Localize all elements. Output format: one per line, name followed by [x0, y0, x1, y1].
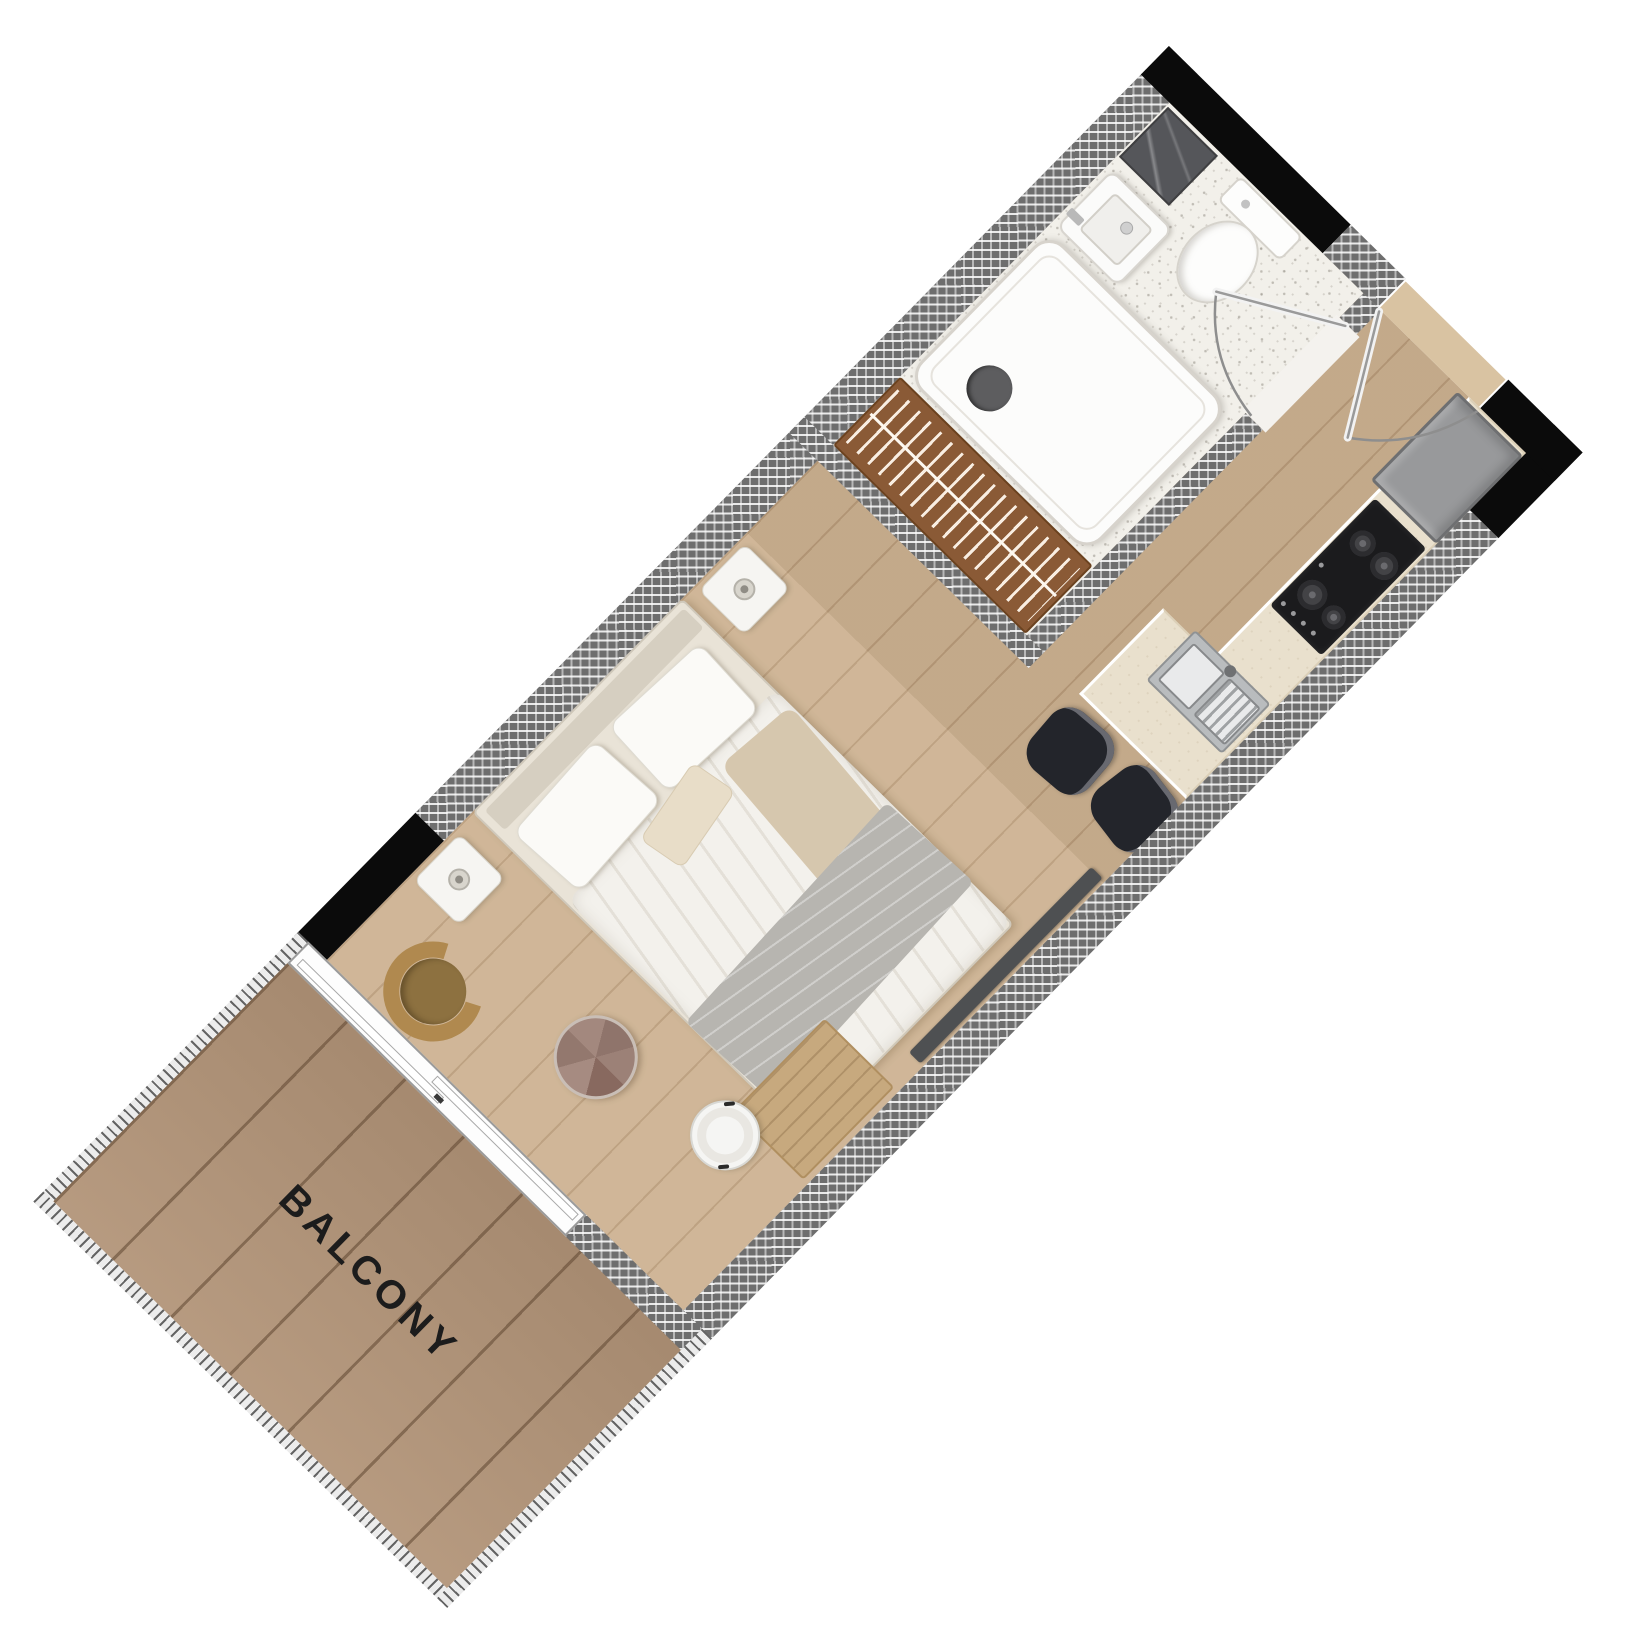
floor-plan: BALCONY: [33, 46, 1582, 1608]
screenshot-canvas: { "floorplan": { "balcony_label": "BALCO…: [0, 0, 1625, 1635]
lamp-icon: [728, 573, 759, 604]
door-handle-icon: [433, 1093, 444, 1104]
wash-basin-bowl: [1078, 192, 1153, 267]
lamp-icon: [443, 863, 474, 894]
side-table-handle: [723, 1101, 734, 1106]
side-table-handle: [717, 1164, 728, 1169]
cooktop-knob-icon: [1309, 629, 1316, 636]
faucet-icon: [1065, 207, 1084, 226]
cooktop-knob-icon: [1317, 561, 1324, 568]
cooktop-knob-icon: [1289, 609, 1296, 616]
flush-button-icon: [1239, 197, 1252, 210]
cooktop-knob-icon: [1299, 619, 1306, 626]
cooktop-knob-icon: [1279, 600, 1286, 607]
